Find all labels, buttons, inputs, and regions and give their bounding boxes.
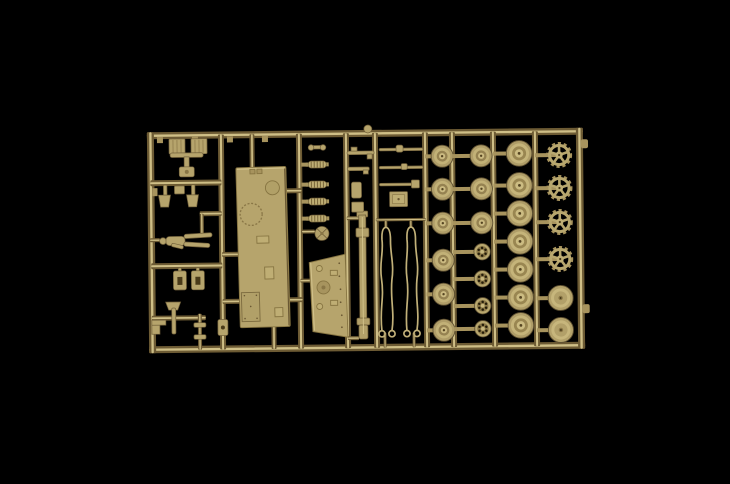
plate-part — [351, 182, 361, 198]
crate-part — [169, 139, 185, 154]
box-part — [352, 202, 364, 212]
hatch-plate-part — [389, 192, 407, 207]
springs-layer — [301, 161, 329, 222]
wheels-layer — [425, 140, 574, 344]
sprue-photo-svg — [0, 0, 730, 484]
hatch-detail — [265, 181, 279, 195]
bolted-hatch-detail — [241, 292, 260, 321]
pulley-part — [315, 226, 329, 240]
sprue-group — [147, 123, 590, 354]
axle-rod-part — [379, 145, 423, 152]
crate-part — [191, 139, 207, 154]
soldier-figure — [160, 233, 213, 250]
lamp-part — [186, 185, 198, 207]
dumbbell-part — [308, 145, 326, 151]
photo-canvas: Overhead photograph of a sand-coloured i… — [0, 0, 730, 484]
hull-roof-panel — [236, 166, 290, 327]
left-section-parts — [150, 138, 228, 339]
tow-cable — [403, 227, 420, 337]
machine-gun-part — [347, 147, 374, 159]
axle-rod-part — [379, 180, 419, 188]
gun-barrel-part — [356, 211, 370, 339]
lamp-part — [158, 185, 170, 207]
gun-mount-part — [170, 153, 203, 177]
vision-port-part — [191, 268, 204, 290]
bracket-part — [218, 319, 228, 335]
tow-cable-parts — [378, 227, 420, 337]
tool-part — [152, 320, 166, 334]
small-fittings — [308, 145, 329, 241]
side-hull-panel — [309, 254, 348, 337]
tow-cable — [378, 227, 395, 337]
vision-port-part — [173, 268, 186, 290]
flat-plate-part — [174, 186, 184, 194]
axle-rod-part — [379, 163, 423, 169]
machine-gun-part — [347, 167, 369, 174]
mg-and-rod-parts — [347, 145, 424, 212]
